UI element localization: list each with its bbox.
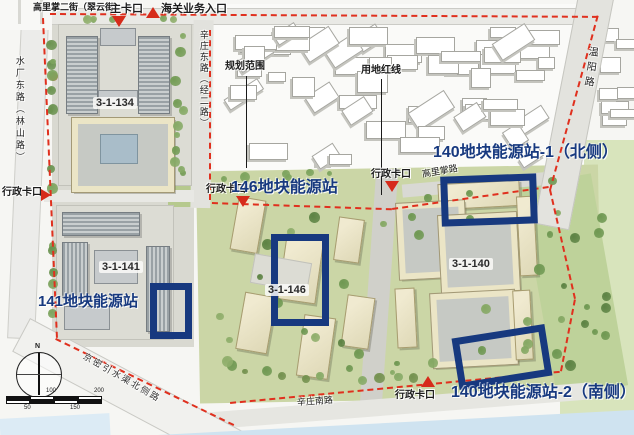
planning-scope-label: 规划范围 [225,61,265,72]
building [100,134,138,164]
building [394,288,417,349]
city-block [471,68,491,88]
tree [48,104,58,114]
city-block [610,109,634,119]
tree [174,132,180,138]
tree [594,228,604,238]
city-block [538,57,555,69]
scale-bar: 50 100 150 200 [6,396,104,412]
city-block [230,85,257,100]
tree [534,264,545,275]
city-block [349,27,388,45]
tree [552,349,562,359]
energy-station-marker-140-north [440,173,538,226]
tree [565,360,576,371]
tree [346,365,353,372]
tree [173,121,183,131]
tree [301,328,308,335]
energy-station-marker-141 [150,283,192,339]
customs-entrance-marker-icon [146,7,160,18]
scale-bar-segment [30,400,54,404]
scale-bar-segment [6,400,30,404]
admin-checkpoint-label-midright: 行政卡口 [371,169,411,180]
city-block [483,99,518,109]
tree [584,304,590,310]
scale-bar-label-50: 50 [24,405,31,411]
plot-label-140: 3-1-140 [449,258,493,270]
boundary-dash [209,30,211,200]
tree [309,212,320,223]
city-block [617,87,634,99]
tree [481,304,491,314]
city-block [616,39,634,49]
admin-checkpoint-marker-left-icon [41,189,51,201]
tree [380,221,386,227]
admin-checkpoint-label-left: 行政卡口 [2,187,42,198]
scale-bar-segment [78,400,102,404]
admin-checkpoint-marker-bottom-icon [421,376,435,387]
admin-checkpoint-marker-midleft-icon [236,196,250,207]
tree [90,16,97,23]
tree [170,76,180,86]
building [100,28,136,46]
tree [170,16,177,23]
tree [50,59,55,64]
tree [47,86,56,95]
city-block [268,72,286,82]
plot-label-146: 3-1-146 [265,284,309,296]
scale-bar-label-100: 100 [46,388,56,394]
tree [302,375,310,383]
scale-bar-segment [54,400,78,404]
tree [414,230,424,240]
tree [394,361,399,366]
city-block [490,109,525,126]
energy-station-label-140-north: 140地块能源站-1（北侧） [433,138,618,162]
tree [581,320,589,328]
building [62,212,140,236]
compass-north-label: N [35,343,40,351]
compass-crossline [17,374,61,375]
tree [160,15,167,22]
tree [408,213,416,221]
tree [179,106,188,115]
scale-bar-label-200: 200 [94,388,104,394]
energy-station-marker-146 [271,234,329,326]
tree [394,373,402,381]
tree [597,213,607,223]
admin-checkpoint-marker-midright-icon [385,181,399,192]
main-gate-marker-icon [112,16,126,27]
customs-entrance-label: 海关业务入口 [161,3,227,15]
city-block [249,143,288,160]
tree [354,349,364,359]
energy-station-label-141: 141地块能源站 [38,290,138,311]
tree [242,369,247,374]
tree [523,317,532,326]
tree [180,33,186,39]
city-block [292,77,315,97]
tree [278,372,286,380]
city-block [329,154,351,165]
main-gate-label: 主卡口 [110,3,143,15]
tree [170,157,180,167]
tree [175,47,186,58]
plot-label-141: 3-1-141 [99,261,143,273]
tree [428,358,438,368]
tree [172,146,180,154]
tree [46,40,56,50]
tree [316,372,323,379]
city-block [516,70,545,81]
plot-label-134: 3-1-134 [93,97,137,109]
road-label-left: 水厂东路（林山路） [14,56,24,164]
energy-station-label-146: 146地块能源站 [231,173,338,197]
city-block [600,57,621,72]
tree [47,70,58,81]
scale-bar-label-150: 150 [70,405,80,411]
map-zone [18,0,21,24]
tree [338,339,346,347]
tree [602,292,611,301]
tree [262,366,272,376]
road-label-mid: 辛庄东路（经二路） [198,30,208,129]
tree [570,233,580,243]
city-block [441,51,481,62]
land-red-line-label: 用地红线 [361,65,401,76]
energy-station-label-140-south: 140地块能源站-2（南侧） [451,378,634,402]
admin-checkpoint-label-bottom: 行政卡口 [395,390,435,401]
planning-scope-pointer-line [246,76,247,168]
tree [424,194,431,201]
site-plan-map: 高里掌二街（翠云街） 主卡口 海关业务入口 水厂东路（林山路） 行政卡口 辛庄东… [0,0,634,435]
city-block [599,88,618,100]
building [138,36,170,114]
tree [374,373,384,383]
tree [601,303,611,313]
city-block [274,26,309,38]
